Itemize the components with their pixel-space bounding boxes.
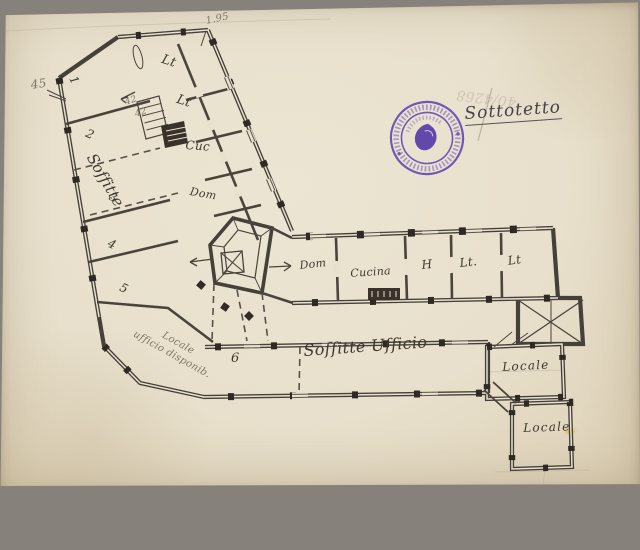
room-label-locale-2: Locale bbox=[523, 420, 571, 434]
room-label-lt-east-2: Lt bbox=[507, 253, 522, 267]
room-number-6: 6 bbox=[231, 352, 240, 365]
cross-braced-room bbox=[484, 300, 583, 412]
floor-plan-drawing bbox=[0, 0, 640, 487]
room-label-dom-east: Dom bbox=[299, 257, 327, 271]
room-label-lt-east-1: Lt. bbox=[459, 255, 478, 269]
stove-block bbox=[368, 288, 400, 300]
scanned-floor-plan-page: 1.95 45 1 Lt Lt 42 42 2 Cuc Soffitte 3 D… bbox=[0, 0, 640, 487]
archive-stamp-icon bbox=[383, 94, 471, 182]
room-label-locale-1: Locale bbox=[502, 359, 550, 373]
room-label-cuc: Cuc bbox=[185, 139, 210, 153]
room-label-h: H bbox=[421, 258, 433, 271]
interior-walls bbox=[66, 44, 502, 342]
measure-annotation-left: 45 bbox=[30, 77, 47, 91]
room-label-cucina: Cucina bbox=[350, 265, 391, 279]
drawing-paper: 1.95 45 1 Lt Lt 42 42 2 Cuc Soffitte 3 D… bbox=[0, 0, 640, 487]
